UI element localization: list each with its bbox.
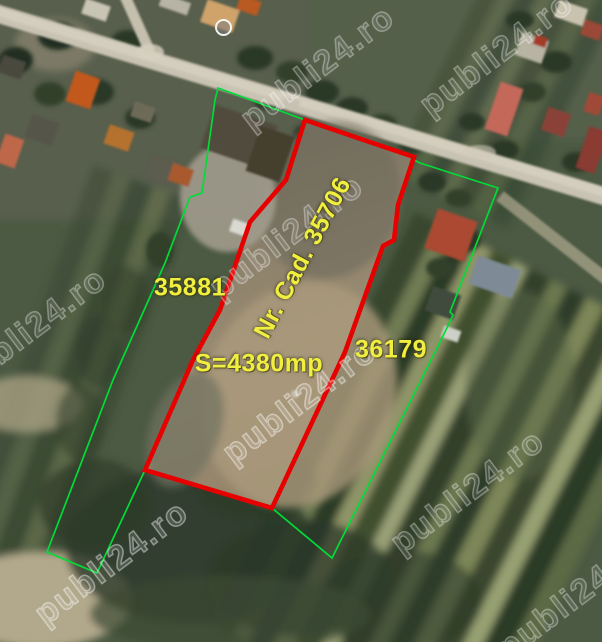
terrain xyxy=(0,0,602,642)
satellite-imagery xyxy=(0,0,602,642)
satellite-map: publi24.ro publi24.ro publi24.ro publi24… xyxy=(0,0,602,642)
main-parcel-area-label: S=4380mp xyxy=(195,352,323,377)
parcel-number-label-36179: 36179 xyxy=(355,338,427,363)
poi-marker xyxy=(215,19,232,36)
parcel-number-label-35881: 35881 xyxy=(154,276,226,301)
